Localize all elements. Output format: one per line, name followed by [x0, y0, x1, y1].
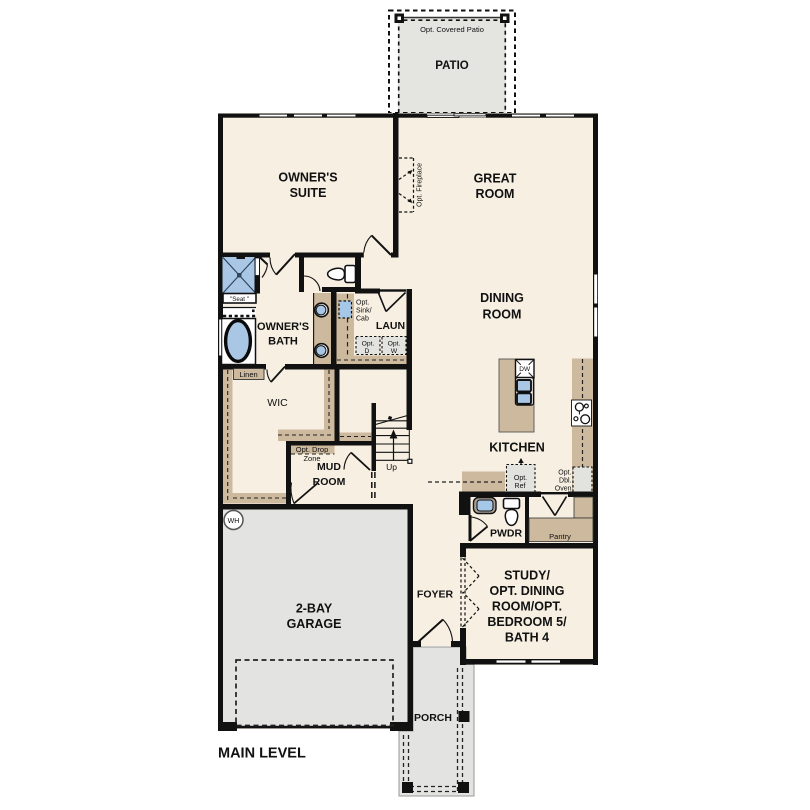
svg-text:ROOM: ROOM: [313, 476, 346, 488]
svg-text:Dbl.: Dbl.: [559, 478, 572, 485]
svg-text:Up: Up: [386, 462, 397, 472]
svg-text:Opt.: Opt.: [514, 475, 527, 482]
svg-text:"Seat ": "Seat ": [230, 296, 249, 303]
svg-text:Opt. Drop: Opt. Drop: [296, 445, 329, 454]
svg-text:Opt.: Opt.: [558, 470, 571, 477]
svg-text:GREAT: GREAT: [474, 172, 517, 186]
svg-text:MAIN LEVEL: MAIN LEVEL: [218, 746, 306, 762]
svg-text:Opt.: Opt.: [356, 300, 369, 307]
svg-text:OPT. DINING: OPT. DINING: [489, 584, 564, 598]
svg-text:D: D: [365, 348, 370, 355]
svg-text:MUD: MUD: [317, 461, 341, 473]
svg-text:OWNER'S: OWNER'S: [257, 321, 309, 333]
svg-text:Opt.: Opt.: [388, 341, 401, 348]
svg-text:WIC: WIC: [267, 397, 288, 409]
svg-text:ROOM: ROOM: [476, 187, 515, 201]
svg-text:STUDY/: STUDY/: [504, 569, 550, 583]
svg-text:Sink/: Sink/: [356, 308, 372, 315]
svg-text:Opt. Fireplace: Opt. Fireplace: [417, 163, 424, 207]
svg-text:DW: DW: [519, 366, 531, 373]
svg-text:Linen: Linen: [239, 370, 257, 379]
svg-text:Oven: Oven: [555, 486, 572, 493]
svg-text:Opt.: Opt.: [362, 341, 375, 348]
svg-text:PATIO: PATIO: [435, 60, 468, 72]
svg-text:PWDR: PWDR: [490, 528, 522, 540]
svg-text:ROOM: ROOM: [483, 308, 522, 322]
svg-text:WH: WH: [228, 518, 240, 525]
svg-text:Cab: Cab: [356, 316, 369, 323]
svg-text:ROOM/OPT.: ROOM/OPT.: [492, 600, 562, 614]
svg-text:BATH 4: BATH 4: [505, 631, 549, 645]
svg-text:GARAGE: GARAGE: [287, 617, 342, 631]
svg-text:PORCH: PORCH: [414, 712, 452, 724]
svg-text:Opt. Covered Patio: Opt. Covered Patio: [420, 25, 484, 34]
svg-text:W: W: [391, 348, 398, 355]
svg-text:SUITE: SUITE: [290, 186, 327, 200]
svg-text:DINING: DINING: [480, 291, 524, 305]
svg-text:BATH: BATH: [268, 336, 298, 348]
svg-text:Ref: Ref: [515, 483, 526, 490]
svg-text:FOYER: FOYER: [417, 589, 454, 601]
svg-text:BEDROOM 5/: BEDROOM 5/: [487, 615, 567, 629]
svg-text:LAUN: LAUN: [376, 320, 405, 332]
svg-text:OWNER'S: OWNER'S: [278, 171, 337, 185]
svg-text:2-BAY: 2-BAY: [296, 602, 333, 616]
svg-text:Pantry: Pantry: [549, 532, 571, 541]
svg-text:KITCHEN: KITCHEN: [489, 441, 545, 455]
